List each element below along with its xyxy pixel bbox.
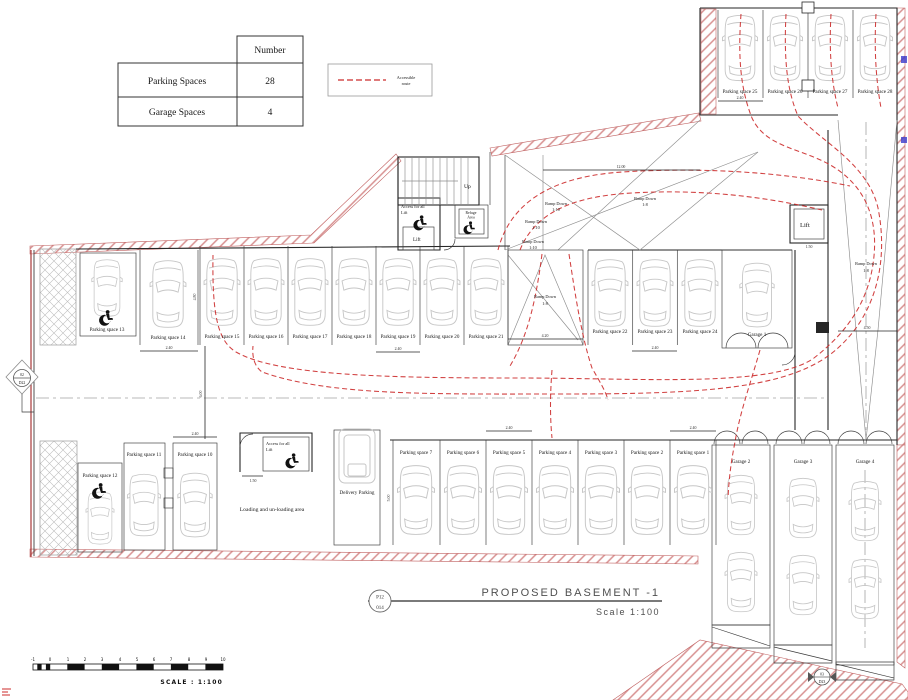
car-icon (444, 466, 481, 535)
table-row-garage-label: Garage Spaces (149, 108, 205, 118)
dim-text: 4.20 (542, 334, 549, 338)
parking-space-19-label: Parking space 19 (381, 334, 416, 340)
parking-space-22-label: Parking space 22 (593, 329, 628, 335)
wheelchair-icon (92, 483, 106, 499)
legend-accessible-route: Accessible route (328, 64, 432, 96)
parking-space-17-label: Parking space 17 (293, 334, 328, 340)
delivery-parking-label: Delivery Parking (340, 490, 375, 496)
ramp-lines (505, 120, 897, 440)
ramp-grade-label: 1:10 (532, 225, 540, 230)
dim-text: 1.50 (806, 245, 813, 249)
parking-space-24-label: Parking space 24 (683, 329, 718, 335)
garage-1-label: Garage 1 (748, 332, 767, 338)
car-icon (292, 259, 328, 326)
legend-label2: route (402, 81, 411, 86)
table-row-garage-value: 4 (268, 108, 273, 118)
dim-text: 2.40 (737, 96, 744, 100)
section-ref-top: 03 (820, 673, 824, 677)
lift-label-right: Lift (800, 222, 810, 229)
dim-text: 2.40 (652, 346, 659, 350)
scale-tick: 6 (153, 657, 156, 662)
car-icon (380, 259, 416, 326)
refuge-area-label: Refuge (466, 211, 477, 215)
scale-bar-caption: SCALE : 1:100 (160, 679, 223, 686)
access-for-all-lift-label: Lift (401, 210, 408, 215)
wheelchair-icon (99, 310, 113, 326)
ramp-grade-label: 1:10 (552, 207, 560, 212)
car-icon (582, 466, 619, 535)
car-icon (725, 475, 757, 534)
parking-space-14-label: Parking space 14 (151, 335, 186, 341)
blue-annotation-mark (901, 56, 907, 63)
ramp-grade-label: 1:8 (863, 268, 869, 273)
parking-space-18-label: Parking space 18 (337, 334, 372, 340)
scale-tick: 2 (84, 657, 87, 662)
parking-space-27-label: Parking space 27 (813, 89, 848, 95)
garage-2-label: Garage 2 (732, 459, 751, 465)
floor-plan: Up (0, 0, 908, 700)
red-annotation-mark (2, 689, 11, 695)
scale-tick: 1 (67, 657, 70, 662)
car-icon (740, 263, 774, 327)
ramp-down-label: Ramp Down (545, 201, 568, 206)
car-icon (787, 555, 819, 614)
ramp-down-label: Ramp Down (525, 219, 548, 224)
car-icon (248, 259, 284, 326)
dim-text: 4.80 (193, 294, 197, 301)
scale-tick: 7 (170, 657, 173, 662)
scale-bar: -1 0 1 2 3 4 5 6 7 8 9 10 SCALE : 1:100 (31, 657, 226, 686)
section-ref-bottom: D22 (19, 381, 26, 385)
parking-space-26-label: Parking space 26 (768, 89, 803, 95)
parking-space-3-label: Parking space 3 (585, 450, 618, 456)
parking-space-10-label: Parking space 10 (178, 452, 213, 458)
dim-text: 2.40 (192, 432, 199, 436)
ramp-labels: Ramp Down 1:10 Ramp Down 1:10 Ramp Down … (522, 196, 878, 306)
lift-label: Lift (413, 236, 421, 243)
car-icon (204, 259, 240, 326)
car-icon (92, 260, 122, 317)
parking-space-25-label: Parking space 25 (723, 89, 758, 95)
drawing-ref-top: P12 (376, 596, 384, 601)
scale-tick: 4 (119, 657, 122, 662)
parking-space-6-label: Parking space 6 (447, 450, 480, 456)
dim-text: 1.50 (250, 479, 257, 483)
dim-text: 2.40 (690, 426, 697, 430)
car-icon (397, 466, 434, 535)
car-icon (592, 260, 628, 327)
car-icon (336, 259, 372, 326)
dim-text: 4.50 (864, 326, 871, 330)
annotation-marks (2, 56, 907, 695)
scale-tick: -1 (31, 657, 35, 662)
access-for-all-label-bottom: Access for all (266, 441, 290, 446)
scale-tick: 3 (101, 657, 104, 662)
scale-tick: 8 (188, 657, 191, 662)
section-marker-left: 02 D22 (6, 360, 38, 412)
ramp-down-label: Ramp Down (634, 196, 657, 201)
garage-4-label: Garage 4 (856, 459, 875, 465)
blue-annotation-mark (901, 137, 907, 143)
parking-space-1-label: Parking space 1 (677, 450, 710, 456)
dimensions: 2.40 2.40 2.40 2.40 2.40 2.40 2.40 4.20 … (140, 96, 897, 501)
parking-space-13-label: Parking space 13 (90, 327, 125, 333)
parking-space-2-label: Parking space 2 (631, 450, 664, 456)
scale-tick: 5 (136, 657, 139, 662)
ramp-down-label: Ramp Down (522, 239, 545, 244)
scale-tick: 9 (205, 657, 208, 662)
loading-area-label: Loading and un-loading area (240, 507, 305, 513)
ramp-down-label: Ramp Down (855, 261, 878, 266)
dim-text: 2.40 (506, 426, 513, 430)
parking-space-23-label: Parking space 23 (638, 329, 673, 335)
parking-space-11-label: Parking space 11 (127, 452, 162, 458)
dim-text: 5.00 (387, 495, 391, 502)
dim-text: 6.00 (199, 391, 203, 398)
garage-3-label: Garage 3 (794, 459, 813, 465)
ramp-down-label: Ramp Down (534, 294, 557, 299)
car-icon (127, 474, 160, 536)
wheelchair-icon (413, 215, 426, 230)
scale-tick: 10 (220, 657, 226, 662)
parking-space-15-label: Parking space 15 (205, 334, 240, 340)
car-icon (637, 260, 673, 327)
refuge-area-label2: Area (467, 216, 475, 220)
section-ref-bottom: D23 (819, 680, 826, 684)
ramp-grade-label: 1:8 (642, 202, 648, 207)
scale-tick: 0 (49, 657, 52, 662)
ramp-grade-label: 1:8 (542, 301, 548, 306)
parking-space-7-label: Parking space 7 (400, 450, 433, 456)
car-icon (674, 466, 711, 535)
dim-text: 2.40 (395, 347, 402, 351)
parking-space-20-label: Parking space 20 (425, 334, 460, 340)
parking-space-5-label: Parking space 5 (493, 450, 526, 456)
legend-label: Accessible (397, 75, 416, 80)
stairs-up-label: Up (464, 184, 471, 190)
drawing-canvas: Up (0, 0, 908, 700)
parking-space-21-label: Parking space 21 (469, 334, 504, 340)
drawing-title: PROPOSED BASEMENT -1 (481, 587, 660, 599)
parking-space-12-label: Parking space 12 (83, 473, 118, 479)
car-icon (468, 259, 504, 326)
table-header-number: Number (254, 46, 286, 56)
parking-space-16-label: Parking space 16 (249, 334, 284, 340)
car-icon (490, 466, 527, 535)
parking-space-28-label: Parking space 28 (858, 89, 893, 95)
table-row-parking-label: Parking Spaces (148, 77, 207, 87)
wall-crosshatch-blocks (40, 249, 77, 555)
delivery-van-icon (339, 429, 375, 483)
accessible-routes (213, 14, 882, 498)
drawing-scale: Scale 1:100 (596, 607, 660, 617)
section-ref-top: 02 (20, 373, 24, 377)
ramp-grade-label: 1:10 (529, 245, 537, 250)
car-icon (150, 261, 186, 328)
wheelchair-icon (285, 453, 298, 468)
dim-text: 2.40 (166, 346, 173, 350)
car-icon (86, 492, 114, 544)
car-icon (682, 260, 718, 327)
wheelchair-icon (463, 221, 474, 234)
dim-text: 12.00 (617, 165, 626, 169)
car-icon (424, 259, 460, 326)
table-row-parking-value: 28 (265, 77, 275, 87)
car-icon (787, 478, 819, 537)
access-for-all-label: Access for all (401, 204, 425, 209)
car-icon (536, 466, 573, 535)
drawing-ref-bottom: 014 (376, 606, 384, 611)
car-icon (628, 466, 665, 535)
car-icon (178, 473, 212, 537)
parking-space-4-label: Parking space 4 (539, 450, 572, 456)
summary-table: Number Parking Spaces 28 Garage Spaces 4 (118, 36, 303, 126)
access-for-all-lift-label-bottom: Lift (266, 447, 273, 452)
car-icon (725, 552, 757, 611)
title-block: P12 014 PROPOSED BASEMENT -1 Scale 1:100 (368, 587, 662, 617)
